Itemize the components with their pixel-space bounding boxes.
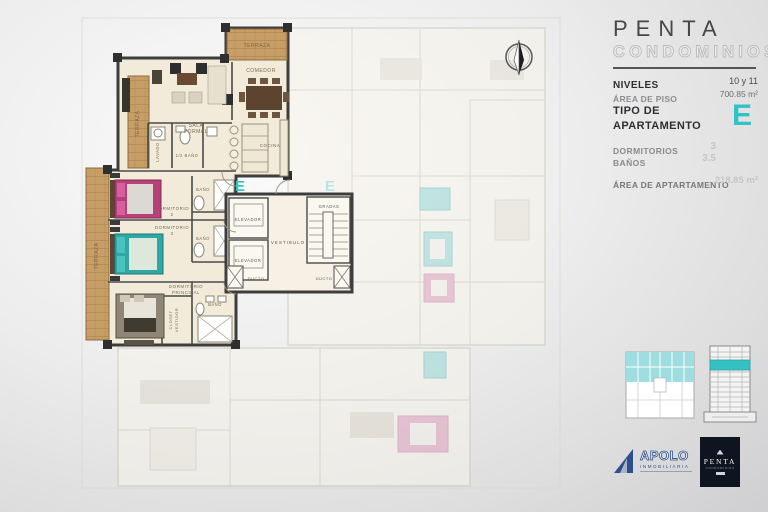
niveles-value: 10 y 11	[729, 76, 758, 86]
label-lavado: LAVADO	[155, 142, 160, 162]
area-apartamento-value: 218.85 m²	[715, 175, 758, 186]
label-elevador-1: ELEVADOR	[235, 217, 262, 222]
unit-letter-e: E	[235, 178, 245, 195]
dormitorios-value: 3	[710, 141, 716, 152]
row-banos: BAÑOS 3.5	[613, 153, 758, 171]
penta-logo-name: PENTA	[704, 457, 737, 466]
bedroom-3-furniture	[110, 227, 163, 281]
label-closet-2: VESTIDOR	[174, 308, 179, 332]
label-ducto-left: DUCTO	[248, 276, 265, 281]
banos-label: BAÑOS	[613, 158, 646, 168]
apolo-inmobiliaria-logo: APOLO INMOBILIARIA	[612, 446, 698, 486]
penta-logo-icon	[717, 450, 724, 455]
penta-logo-box: PENTA CONDOMINIOS	[700, 437, 740, 487]
label-dormitorio-2-1: DORMITORIO	[155, 206, 189, 211]
area-piso-value: 700.85 m²	[720, 89, 758, 99]
label-bano-2: BAÑO	[196, 187, 210, 192]
master-bedroom-furniture	[116, 294, 164, 345]
area-apartamento-label: ÁREA DE APTARTAMENTO	[613, 180, 729, 190]
key-plans	[600, 340, 768, 432]
area-piso-label: ÁREA DE PISO	[613, 94, 677, 104]
label-terraza-left-upper: TERRAZA	[135, 110, 141, 137]
label-dormitorio-2-2: 2	[170, 212, 173, 217]
brand-condominios: CONDOMINIOS	[613, 43, 768, 62]
penta-logo-bar	[716, 472, 725, 475]
label-elevador-2: ELEVADOR	[235, 258, 262, 263]
brand-penta: PENTA	[613, 16, 725, 42]
tipo-apartamento-label: TIPO DE APARTAMENTO	[613, 104, 713, 134]
apolo-sub: INMOBILIARIA	[640, 464, 692, 469]
panel-divider	[613, 67, 756, 69]
label-sala-formal-2: FORMAL	[184, 129, 208, 135]
bedroom-2-furniture	[110, 173, 161, 225]
building-elevation	[704, 346, 756, 422]
label-bano-principal: BAÑO	[208, 302, 222, 307]
label-terraza-top: TERRAZA	[244, 43, 271, 49]
label-bano-3: BAÑO	[196, 236, 210, 241]
banos-value: 3.5	[702, 153, 716, 164]
penta-logo-sub: CONDOMINIOS	[705, 466, 734, 469]
label-dormitorio-3-2: 3	[170, 231, 173, 236]
label-gradas: GRADAS	[319, 204, 340, 209]
row-area-apartamento: ÁREA DE APTARTAMENTO 218.85 m²	[613, 175, 758, 193]
label-vestibulo: VESTIBULO	[271, 240, 305, 245]
label-cocina: COCINA	[260, 143, 281, 148]
floorplan-brochure-page: TERRAZA TERRAZA TERRAZA COMEDOR SALA FOR…	[0, 0, 768, 512]
label-terraza-left-lower: TERRAZA	[94, 242, 100, 269]
label-ducto-right: DUCTO	[316, 276, 333, 281]
tipo-apartamento-value: E	[732, 99, 752, 133]
label-medio-bano: 1/2 BAÑO	[176, 153, 199, 158]
label-dormitorio-principal-2: PRINCIPAL	[172, 290, 200, 295]
label-dormitorio-3-1: DORMITORIO	[155, 225, 189, 230]
ghost-unit-bottom	[118, 348, 470, 486]
label-comedor: COMEDOR	[246, 68, 276, 74]
apolo-name: APOLO	[640, 448, 692, 463]
label-dormitorio-principal-1: DORMITORIO	[169, 284, 203, 289]
apolo-sail-icon	[612, 446, 638, 476]
apolo-tagline-rule	[640, 471, 692, 472]
info-panel: PENTA CONDOMINIOS NIVELES 10 y 11 ÁREA D…	[600, 0, 768, 512]
ghost-unit-letter-e: E	[325, 178, 335, 195]
label-closet-1: CLOSET	[168, 310, 173, 329]
unit-location-key	[600, 340, 768, 432]
